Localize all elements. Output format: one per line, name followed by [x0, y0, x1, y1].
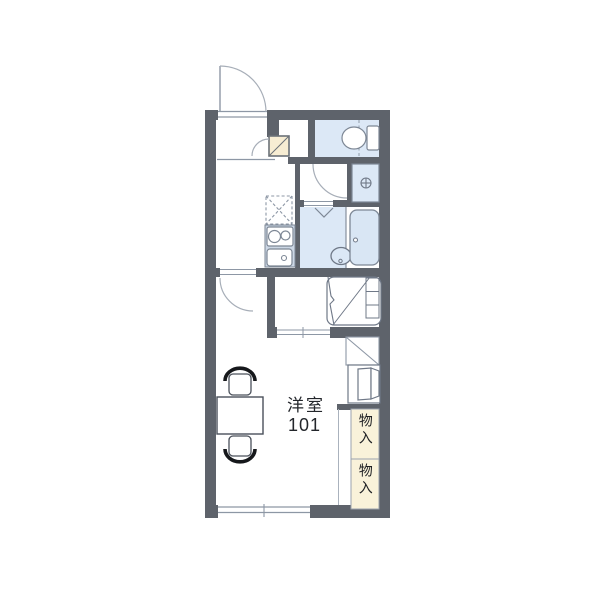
gas-stove-icon [267, 227, 293, 246]
storage-label-2: 物入 [358, 463, 373, 497]
floor-plan-drawing [0, 0, 600, 600]
room-number: 101 [288, 416, 321, 435]
storage-label-1: 物入 [358, 413, 373, 447]
vanity-basin-icon [331, 248, 351, 265]
washing-machine-pan [352, 164, 379, 202]
dining-table [217, 397, 263, 434]
kitchen-counter [265, 225, 295, 267]
water-heater-cabinet [348, 365, 380, 403]
bathtub-icon [350, 210, 379, 265]
bathroom [300, 200, 379, 268]
main-room-window [218, 504, 310, 518]
drain-icon [361, 178, 371, 188]
closet-room-window [277, 327, 330, 338]
toilet-room [315, 120, 379, 157]
kitchen-sink-icon [267, 249, 292, 266]
entrance-door [218, 66, 267, 120]
floor-plan-canvas: 洋室 101 物入 物入 [0, 0, 600, 600]
loft-ladder-area [327, 277, 381, 325]
room-label: 洋室 [287, 397, 325, 415]
corner-shelf [346, 337, 379, 365]
toilet-icon [342, 126, 379, 150]
